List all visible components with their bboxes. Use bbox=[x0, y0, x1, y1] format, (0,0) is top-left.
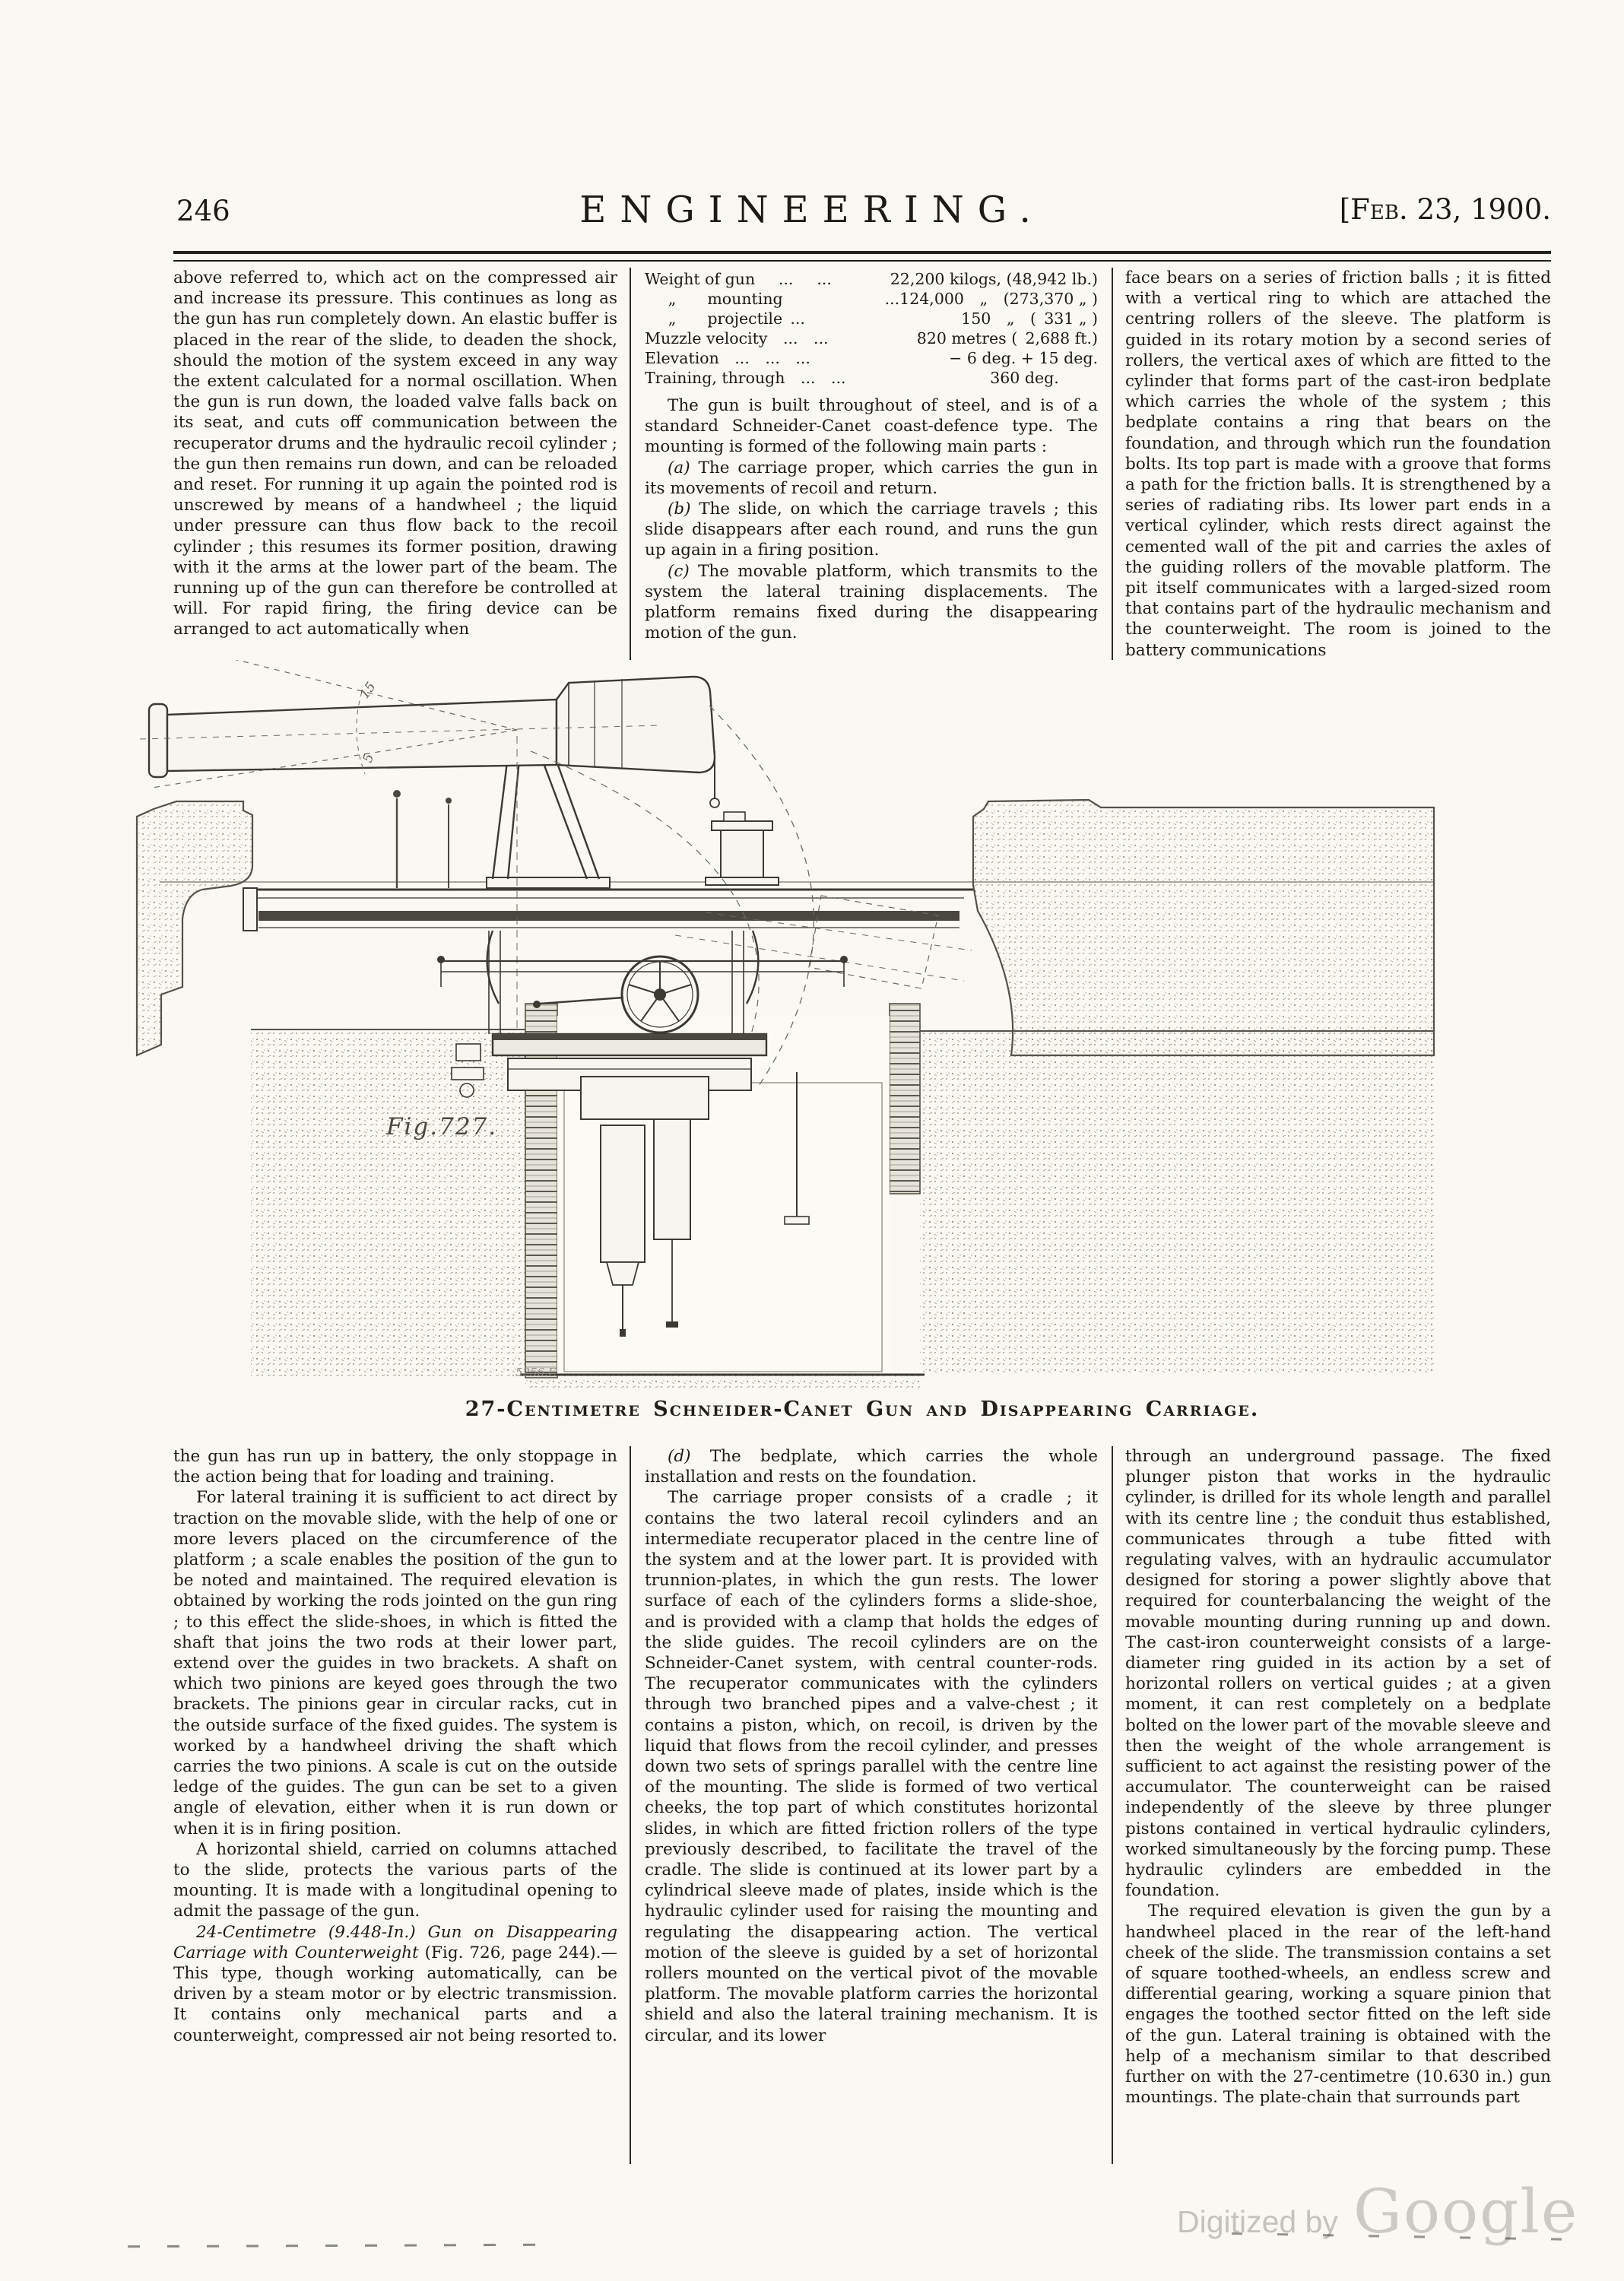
paragraph: 24-Centimetre (9.448-In.) Gun on Disappe… bbox=[173, 1922, 617, 2046]
item-letter: (d) bbox=[668, 1447, 691, 1466]
spec-row: Elevation ... ... ...− 6 deg. + 15 deg. bbox=[645, 348, 1098, 368]
bottom-right-column: through an underground passage. The fixe… bbox=[1113, 1446, 1551, 2164]
spec-value: 150 „ ( 331 „ ) bbox=[961, 309, 1098, 328]
top-text-section: above referred to, which act on the comp… bbox=[173, 268, 1551, 660]
bottom-middle-column: (d) The bedplate, which carries the whol… bbox=[630, 1446, 1113, 2164]
spec-row: „ projectile ...150 „ ( 331 „ ) bbox=[645, 309, 1098, 328]
issue-date: [Feb. 23, 1900. bbox=[1340, 193, 1551, 226]
plate-mark: 5256.E bbox=[515, 1366, 557, 1379]
elevation-angle-upper-label: 15 bbox=[357, 680, 379, 702]
spec-value: ...124,000 „ (273,370 „ ) bbox=[885, 289, 1098, 309]
list-item: (c) The movable platform, which transmit… bbox=[645, 561, 1098, 644]
top-right-column: face bears on a series of friction balls… bbox=[1113, 268, 1551, 660]
bottom-text-section: the gun has run up in battery, the only … bbox=[173, 1446, 1551, 2164]
spec-value: 820 metres ( 2,688 ft.) bbox=[917, 328, 1098, 348]
paragraph: The gun is built throughout of steel, an… bbox=[645, 395, 1098, 458]
item-text: The slide, on which the carriage travels… bbox=[645, 500, 1098, 560]
paragraph: A horizontal shield, carried on columns … bbox=[173, 1839, 617, 1922]
spec-label: Muzzle velocity ... ... bbox=[645, 328, 829, 348]
figure-727: 15 5 bbox=[129, 660, 1551, 1388]
paragraph: the gun has run up in battery, the only … bbox=[173, 1446, 617, 1487]
figure-number-label: Fig.727. bbox=[386, 1113, 497, 1140]
paragraph: The carriage proper consists of a cradle… bbox=[645, 1487, 1098, 2045]
list-item: (a) The carriage proper, which carries t… bbox=[645, 458, 1098, 499]
item-text: The carriage proper, which carries the g… bbox=[645, 458, 1098, 498]
scanned-journal-page: 246 ENGINEERING. [Feb. 23, 1900. above r… bbox=[0, 0, 1624, 2281]
item-letter: (a) bbox=[668, 458, 690, 477]
spec-value: 22,200 kilogs, (48,942 lb.) bbox=[890, 269, 1098, 289]
spec-row: „ mounting...124,000 „ (273,370 „ ) bbox=[645, 289, 1098, 309]
spec-row: Muzzle velocity ... ...820 metres ( 2,68… bbox=[645, 328, 1098, 348]
item-text: The movable platform, which transmits to… bbox=[645, 562, 1098, 643]
spec-label: Weight of gun ... ... bbox=[645, 269, 832, 289]
spec-label: Elevation ... ... ... bbox=[645, 348, 810, 368]
top-middle-column: Weight of gun ... ...22,200 kilogs, (48,… bbox=[630, 268, 1113, 660]
item-text: The bedplate, which carries the whole in… bbox=[645, 1447, 1098, 1486]
scan-artifact-dashes bbox=[128, 2244, 542, 2248]
spec-label: „ mounting bbox=[645, 289, 783, 309]
spec-label: „ projectile ... bbox=[645, 309, 805, 328]
gun-spec-table: Weight of gun ... ...22,200 kilogs, (48,… bbox=[645, 269, 1098, 388]
list-item: (b) The slide, on which the carriage tra… bbox=[645, 499, 1098, 561]
spec-label: Training, through ... ... bbox=[645, 368, 846, 388]
figure-drawing: 15 5 bbox=[129, 660, 1551, 1388]
paragraph: The required elevation is given the gun … bbox=[1125, 1901, 1551, 2108]
spec-value: − 6 deg. + 15 deg. bbox=[949, 348, 1098, 368]
top-left-column: above referred to, which act on the comp… bbox=[173, 268, 630, 660]
list-item: (d) The bedplate, which carries the whol… bbox=[645, 1446, 1098, 1487]
figure-caption: 27-Centimetre Schneider-Canet Gun and Di… bbox=[173, 1397, 1551, 1421]
item-letter: (c) bbox=[668, 562, 690, 581]
paragraph: through an underground passage. The fixe… bbox=[1125, 1446, 1551, 1901]
spec-value: 360 deg. bbox=[990, 368, 1098, 388]
spec-row: Training, through ... ...360 deg. bbox=[645, 368, 1098, 388]
header-double-rule bbox=[173, 251, 1551, 262]
paragraph: above referred to, which act on the comp… bbox=[173, 268, 617, 640]
bottom-left-column: the gun has run up in battery, the only … bbox=[173, 1446, 630, 2164]
item-letter: (b) bbox=[668, 500, 691, 519]
paragraph: face bears on a series of friction balls… bbox=[1125, 268, 1551, 660]
paragraph: For lateral training it is sufficient to… bbox=[173, 1487, 617, 1838]
spec-row: Weight of gun ... ...22,200 kilogs, (48,… bbox=[645, 269, 1098, 289]
